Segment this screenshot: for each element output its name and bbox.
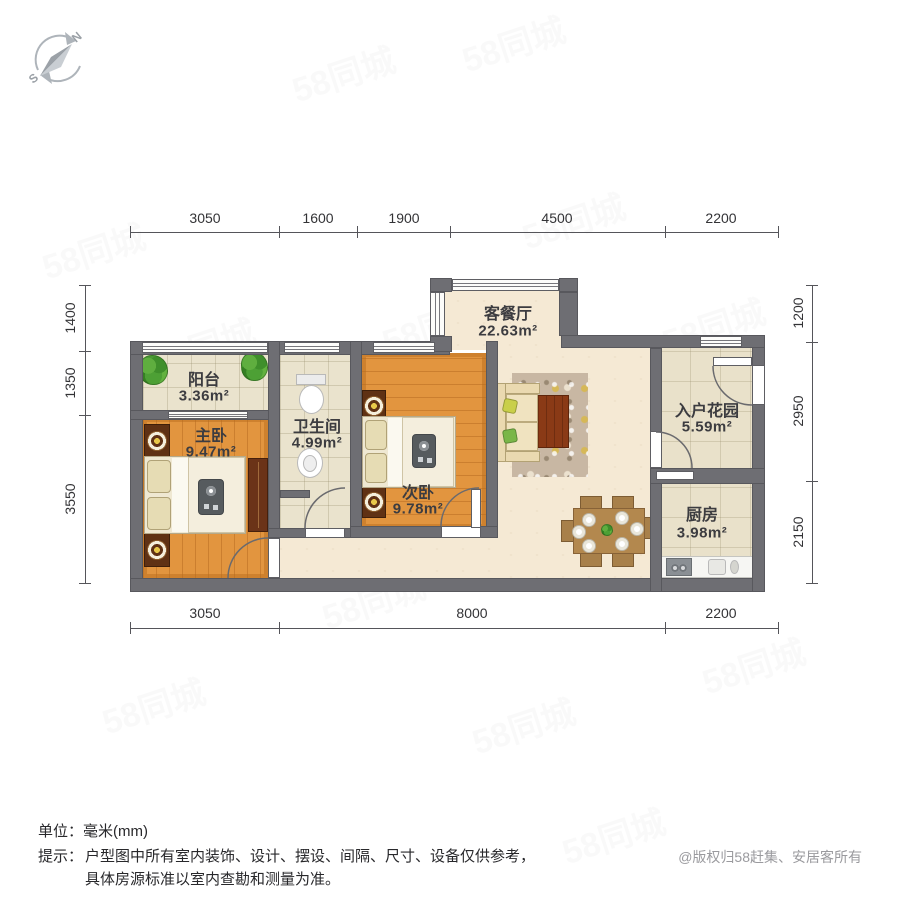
entry-door-opening [752,365,765,405]
plate [582,513,596,527]
wall [130,341,143,592]
master-bedroom-door [268,538,280,578]
plant-icon [241,352,268,381]
watermark-text: 58同城 [285,33,401,112]
watermark-text: 58同城 [515,180,631,259]
dim-bottom-3: 2200 [705,605,736,621]
tick [665,622,666,634]
bay-window-side [430,292,445,336]
compass-arc [36,36,70,70]
plate [615,537,629,551]
pillow [365,420,387,450]
wall-bay-corner [430,278,452,292]
kitchen-sliding-door [656,471,694,480]
sink-basin [303,455,317,472]
compass-arrow-icon [65,32,76,45]
window [142,342,268,353]
tick [357,226,358,238]
plate [630,522,644,536]
lamp-icon [364,396,384,416]
tick [778,622,779,634]
pillow [147,497,171,530]
watermark-text: 58同城 [465,685,581,764]
faucet [730,560,739,574]
dim-top-1: 3050 [189,210,220,226]
watermark-text: 58同城 [95,665,211,744]
dim-line-right [812,285,813,583]
dim-line-left [85,285,86,583]
bed-sheet [388,418,402,486]
lamp-icon [364,492,384,512]
wall [130,578,765,592]
stove [666,558,692,576]
coffee-table [537,395,569,448]
kitchen-sink [708,559,726,575]
compass-north-label: N [69,29,85,45]
lamp-icon [147,540,167,560]
second-bedroom-door [471,489,481,528]
toilet [299,385,324,414]
room-area-second: 9.78m² [393,501,444,518]
dim-line-bottom [130,628,778,629]
bed-sheet [172,458,188,532]
watermark-text: 58同城 [695,625,811,704]
bay-window [452,279,559,291]
dim-left-3: 3550 [62,483,78,514]
unit-note: 单位：毫米(mm) [38,820,148,841]
room-area-kitchen: 3.98m² [677,525,728,542]
hallway-floor [268,538,500,578]
tick [806,583,818,584]
dim-top-3: 1900 [388,210,419,226]
dim-right-3: 2150 [790,516,806,547]
dim-bottom-1: 3050 [189,605,220,621]
plate [572,525,586,539]
compass-south-label: S [26,70,41,86]
toilet-tank [296,374,326,385]
dim-left-2: 1350 [62,367,78,398]
compass-needle-icon [40,44,72,76]
copyright-note: @版权归58赶集、安居客所有 [678,847,862,867]
room-label-living: 客餐厅 [484,300,532,324]
throw-pillow [502,428,518,444]
dim-line-top [130,232,778,233]
compass-arrow-icon [40,71,52,84]
pillow [365,453,387,483]
dim-bottom-2: 8000 [456,605,487,621]
compass-needle-icon [40,44,72,76]
window [373,342,435,353]
tick [665,226,666,238]
room-area-bathroom: 4.99m² [292,435,343,452]
room-label-garden: 入户花园 [675,397,739,421]
table-centerpiece [601,524,613,536]
wall [350,341,362,538]
wall-bay-corner [559,278,578,292]
tick [130,622,131,634]
tip-line-2: 具体房源标准以室内查勘和测量为准。 [85,868,340,889]
dim-top-5: 2200 [705,210,736,226]
room-area-living: 22.63m² [478,323,537,340]
compass: N S [24,20,94,90]
floorplan-page: 58同城 58同城 58同城 58同城 58同城 58同城 58同城 58同城 … [0,0,900,900]
dim-top-4: 4500 [541,210,572,226]
entry-door [713,357,752,366]
lamp-icon [147,431,167,451]
plant-icon [139,355,168,385]
window [284,342,340,353]
tick [79,351,91,352]
watermark-text: 58同城 [555,795,671,874]
dim-top-2: 1600 [302,210,333,226]
room-area-master: 9.47m² [186,444,237,461]
wall-stub [280,490,310,498]
watermark-text: 58同城 [455,3,571,82]
tick [79,285,91,286]
compass-arc [46,66,80,81]
tick [450,226,451,238]
wall [268,341,280,540]
tick [79,415,91,416]
tick [778,226,779,238]
tick [279,622,280,634]
tick [130,226,131,238]
wall [486,341,498,538]
room-label-kitchen: 厨房 [686,501,718,525]
tick [806,285,818,286]
tick [279,226,280,238]
tip-line-1: 户型图中所有室内装饰、设计、摆设、间隔、尺寸、设备仅供参考， [85,845,535,866]
throw-pillow [502,398,519,415]
plate [615,511,629,525]
window [700,336,742,347]
garden-living-door [650,431,662,468]
tick [79,583,91,584]
room-area-garden: 5.59m² [682,419,733,436]
bathroom-door [305,528,345,538]
tick [806,342,818,343]
bed-decor [198,479,224,515]
room-label-bathroom: 卫生间 [293,413,341,437]
room-label-second: 次卧 [402,479,434,503]
dim-right-1: 1200 [790,297,806,328]
wardrobe [248,458,268,532]
room-area-balcony: 3.36m² [179,388,230,405]
dim-left-1: 1400 [62,302,78,333]
wall [559,292,578,336]
tip-label: 提示： [38,845,83,866]
watermark-text: 58同城 [35,210,151,289]
tick [806,481,818,482]
plate [582,539,596,553]
room-label-master: 主卧 [195,422,227,446]
room-label-balcony: 阳台 [188,366,220,390]
pillow [147,460,171,493]
bed-decor [412,434,436,468]
dim-right-2: 2950 [790,395,806,426]
balcony-door-window [168,411,248,419]
